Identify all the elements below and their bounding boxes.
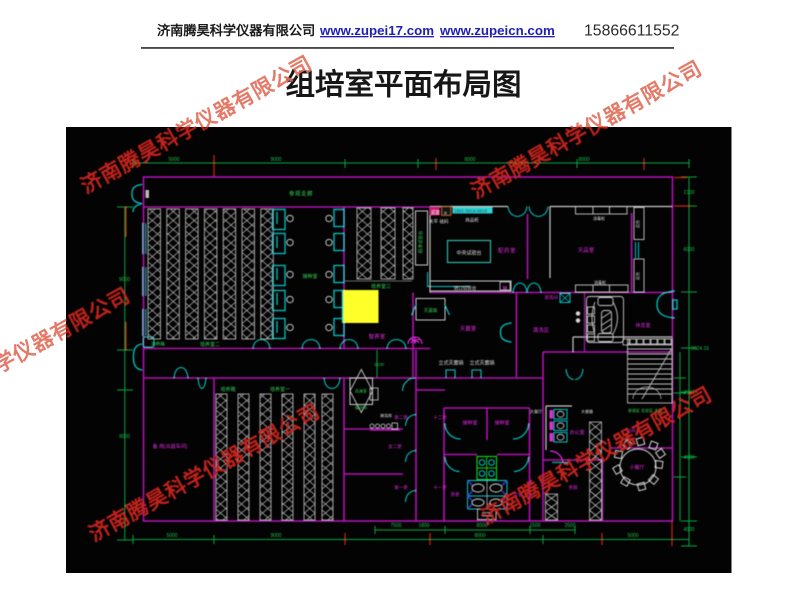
svg-text:2100: 2100 bbox=[683, 190, 694, 196]
svg-text:接种室: 接种室 bbox=[494, 420, 509, 427]
svg-text:缓冲间: 缓冲间 bbox=[355, 404, 367, 410]
svg-text:超净试验台: 超净试验台 bbox=[417, 230, 424, 253]
svg-text:进口试验台: 进口试验台 bbox=[454, 285, 477, 292]
svg-text:消毒柜: 消毒柜 bbox=[593, 215, 605, 221]
svg-text:2100: 2100 bbox=[374, 362, 385, 367]
svg-text:济南腾昊科学仪器有限公司: 济南腾昊科学仪器有限公司 bbox=[157, 22, 315, 38]
svg-text:十一更: 十一更 bbox=[433, 484, 447, 491]
svg-text:培养箱: 培养箱 bbox=[220, 386, 235, 393]
svg-text:接种室: 接种室 bbox=[462, 420, 477, 427]
svg-text:15866611552: 15866611552 bbox=[584, 23, 679, 40]
svg-text:立式灭菌锅: 立式灭菌锅 bbox=[438, 360, 463, 367]
svg-text:清洗间: 清洗间 bbox=[544, 294, 558, 301]
svg-text:边台: 边台 bbox=[634, 272, 640, 280]
svg-text:9000: 9000 bbox=[119, 434, 130, 440]
svg-text:2500: 2500 bbox=[564, 523, 575, 529]
svg-text:8000: 8000 bbox=[464, 157, 475, 163]
svg-text:第一更: 第一更 bbox=[394, 484, 408, 491]
svg-text:www.zupei17.com: www.zupei17.com bbox=[319, 23, 434, 38]
svg-text:4000: 4000 bbox=[683, 527, 694, 533]
svg-text:9000: 9000 bbox=[119, 277, 130, 283]
svg-text:9000: 9000 bbox=[270, 533, 281, 539]
svg-text:接种室: 接种室 bbox=[302, 273, 317, 280]
svg-text:1800: 1800 bbox=[418, 523, 429, 529]
svg-text:消毒柜: 消毒柜 bbox=[594, 279, 606, 285]
svg-text:www.zupeicn.com: www.zupeicn.com bbox=[439, 23, 555, 38]
svg-text:第二更: 第二更 bbox=[394, 414, 408, 421]
svg-text:培养箱: 培养箱 bbox=[151, 341, 165, 348]
svg-text:中央试验台: 中央试验台 bbox=[456, 250, 481, 257]
svg-text:风淋室: 风淋室 bbox=[355, 388, 367, 394]
svg-text:X: X bbox=[444, 211, 447, 216]
svg-text:9024.16: 9024.16 bbox=[691, 346, 709, 352]
svg-text:8000: 8000 bbox=[474, 533, 485, 539]
svg-text:5000: 5000 bbox=[627, 533, 638, 539]
svg-text:立式灭菌锅: 立式灭菌锅 bbox=[469, 360, 494, 367]
svg-text:商品柜: 商品柜 bbox=[465, 217, 479, 224]
svg-text:十二更: 十二更 bbox=[433, 414, 447, 421]
svg-text:办公室: 办公室 bbox=[569, 429, 584, 436]
svg-text:组培室平面布局图: 组培室平面布局图 bbox=[285, 68, 521, 102]
svg-text:1891-5818-5819: 1891-5818-5819 bbox=[454, 209, 488, 214]
svg-text:培养室二: 培养室二 bbox=[200, 341, 220, 348]
svg-text:买卖: 买卖 bbox=[431, 209, 440, 216]
svg-text:大餐厅: 大餐厅 bbox=[530, 408, 542, 414]
svg-text:5000: 5000 bbox=[168, 157, 179, 163]
svg-text:淋浴房: 淋浴房 bbox=[380, 412, 392, 418]
svg-text:砝码: 砝码 bbox=[440, 218, 449, 225]
svg-text:休息室: 休息室 bbox=[635, 322, 650, 329]
svg-text:备 用(出菇车间): 备 用(出菇车间) bbox=[153, 443, 188, 450]
svg-text:女二更: 女二更 bbox=[388, 443, 402, 450]
svg-text:M: M bbox=[503, 286, 507, 292]
svg-text:培养室一: 培养室一 bbox=[270, 386, 290, 393]
svg-text:大便器: 大便器 bbox=[581, 408, 593, 414]
svg-text:1500: 1500 bbox=[529, 523, 540, 529]
svg-text:4000: 4000 bbox=[683, 455, 694, 461]
svg-text:灭菌锅: 灭菌锅 bbox=[424, 307, 438, 314]
svg-text:9000: 9000 bbox=[270, 157, 281, 163]
svg-text:边台: 边台 bbox=[634, 220, 640, 228]
svg-text:6000: 6000 bbox=[683, 247, 694, 253]
svg-text:培养室三: 培养室三 bbox=[371, 283, 391, 290]
svg-text:8000: 8000 bbox=[578, 157, 589, 163]
svg-text:5000: 5000 bbox=[166, 533, 177, 539]
svg-text:7500: 7500 bbox=[390, 523, 401, 529]
svg-text:小餐厅: 小餐厅 bbox=[629, 464, 644, 471]
